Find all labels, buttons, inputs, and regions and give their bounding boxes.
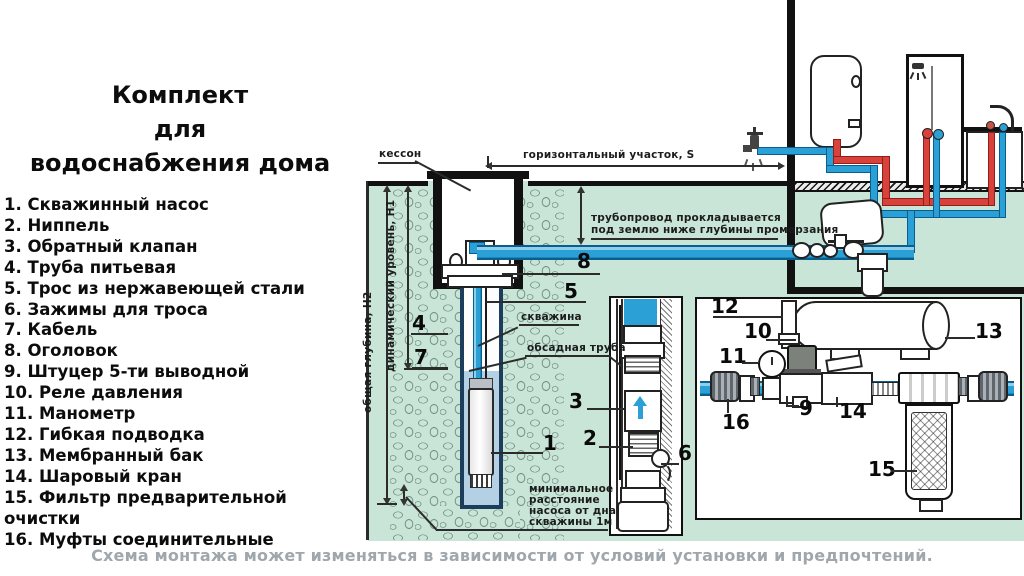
legend-item: 8. Оголовок — [4, 341, 366, 362]
sink-cabinet — [966, 131, 1023, 189]
dim-s-label: горизонтальный участок, S — [523, 150, 694, 162]
legend-item: 3. Обратный клапан — [4, 237, 366, 258]
dim-freeze-arrow-bottom — [577, 238, 585, 245]
gravel-bottom-patch — [440, 506, 520, 540]
prefilter-head — [898, 372, 960, 404]
submersible-pump — [468, 388, 494, 476]
legend-item: 12. Гибкая подводка — [4, 425, 366, 446]
label-min-distance: минимальное расстояние насоса от дна скв… — [529, 484, 616, 528]
shower-hot-valve — [922, 128, 933, 139]
coupling-right-body — [978, 371, 1008, 402]
pipe-cold-sink-riser — [1000, 133, 1005, 217]
dim-h1-arrow-top — [404, 185, 412, 192]
callout-16: 16 — [722, 412, 750, 432]
shower-spray-2 — [917, 73, 919, 80]
callout-12: 12 — [711, 296, 739, 316]
callout-10: 10 — [744, 321, 772, 341]
callout-9: 9 — [799, 398, 813, 418]
ground-line-left — [368, 181, 428, 186]
pipe-cold-to-heater — [758, 148, 833, 154]
label-pipe-note-underline — [591, 238, 778, 240]
tank-foot-right — [900, 348, 930, 360]
house-foundation-line — [787, 287, 1024, 294]
pipe-hot-shower-riser — [924, 136, 929, 205]
prefilter-drain — [919, 499, 943, 512]
callout-13-leader — [945, 337, 975, 339]
pipe-hot-sink-riser — [989, 133, 994, 205]
callout-3: 3 — [569, 391, 583, 411]
shower-head-icon — [912, 63, 924, 69]
dim-freeze-arrow-top — [577, 186, 585, 193]
water-heater — [810, 55, 862, 148]
pipe-hot-drop — [883, 157, 889, 205]
legend-item: 15. Фильтр предварительной очистки — [4, 488, 366, 530]
legend-item: 2. Ниппель — [4, 216, 366, 237]
label-pipe-note: трубопровод прокладывается под землю ниж… — [591, 213, 838, 236]
legend-item: 10. Реле давления — [4, 383, 366, 404]
callout-8: 8 — [577, 251, 591, 271]
callout-5-leader — [486, 301, 586, 303]
station-filter-bowl — [861, 268, 884, 297]
diagram-canvas: Комплект для водоснабжения дома 1. Скваж… — [0, 0, 1024, 576]
gauge-needle — [771, 357, 773, 365]
coupling-left-rings — [750, 377, 760, 396]
pipe-hot-run — [834, 157, 889, 163]
dim-h1-line — [407, 189, 409, 369]
inset-pump-body-3 — [617, 501, 669, 532]
label-kesson-underline — [378, 162, 418, 164]
callout-15-leader — [891, 470, 917, 472]
dim-s-tick — [487, 156, 489, 168]
outdoor-faucet-spout — [743, 145, 752, 152]
callout-3-leader — [587, 408, 624, 410]
flow-arrow-stem — [638, 404, 643, 419]
sink-cold-tap — [999, 123, 1008, 132]
legend-item: 5. Трос из нержавеющей стали — [4, 279, 366, 300]
callout-1-leader — [491, 452, 543, 454]
membrane-tank-end — [922, 301, 950, 350]
inset-cable — [619, 305, 621, 480]
shower-riser-pipe — [931, 66, 933, 130]
callout-10-leader — [766, 339, 796, 341]
callout-6-leader — [661, 463, 679, 465]
page-title: Комплект для водоснабжения дома — [0, 78, 360, 180]
label-casing: обсадная труба — [527, 343, 626, 355]
legend-item: 9. Штуцер 5-ти выводной — [4, 362, 366, 383]
label-borehole: скважина — [521, 312, 582, 324]
legend-item: 4. Труба питьевая — [4, 258, 366, 279]
callout-12-leader — [713, 316, 783, 318]
callout-9-leader-h — [786, 405, 799, 407]
callout-8-leader — [502, 273, 600, 275]
prefilter-cartridge — [911, 412, 947, 490]
callout-4: 4 — [412, 313, 426, 333]
water-heater-thermostat — [851, 75, 861, 88]
dim-h2-tick — [377, 503, 397, 505]
callout-7-leader — [412, 367, 448, 369]
inset-casing-wall-left — [616, 299, 618, 529]
pressure-relay — [787, 345, 817, 371]
inset-pump-head-threads — [624, 355, 661, 374]
label-casing-underline — [525, 355, 610, 357]
callout-14: 14 — [839, 401, 867, 421]
caption: Схема монтажа может изменяться в зависим… — [0, 546, 1024, 565]
pipe-cold-under-heater — [827, 166, 877, 172]
callout-6: 6 — [678, 443, 692, 463]
callout-15: 15 — [868, 459, 896, 479]
legend-list: 1. Скважинный насос2. Ниппель3. Обратный… — [4, 195, 366, 550]
ground-line-right — [528, 181, 788, 186]
callout-1: 1 — [543, 433, 557, 453]
pipe-cold-shower-riser — [934, 136, 939, 217]
callout-7: 7 — [414, 347, 428, 367]
legend-item: 6. Зажимы для троса — [4, 300, 366, 321]
inset-water-column — [624, 299, 657, 325]
membrane-tank-body — [792, 301, 937, 350]
legend-item: 1. Скважинный насос — [4, 195, 366, 216]
callout-5: 5 — [564, 281, 578, 301]
shower-cold-valve — [933, 129, 944, 140]
legend-item: 11. Манометр — [4, 404, 366, 425]
callout-13: 13 — [975, 321, 1003, 341]
callout-16-leader — [727, 399, 729, 413]
coupling-left-body — [710, 371, 740, 402]
sink-hot-tap — [986, 121, 995, 130]
legend-item: 13. Мембранный бак — [4, 446, 366, 467]
dim-h2-label: общая глубина, Н2 — [362, 238, 374, 413]
label-borehole-underline — [519, 324, 579, 326]
callout-2: 2 — [583, 428, 597, 448]
dim-s-arrow-right — [778, 162, 785, 170]
legend-item: 14. Шаровый кран — [4, 467, 366, 488]
label-kesson: кессон — [379, 149, 421, 161]
station-fitting-3 — [823, 244, 838, 258]
callout-2-leader — [599, 446, 633, 448]
legend-item: 7. Кабель — [4, 320, 366, 341]
pump-intake-grille — [470, 474, 492, 488]
dim-1m-arrow-top — [400, 484, 408, 491]
threaded-nipple — [871, 382, 899, 396]
dim-freeze-line — [580, 190, 582, 242]
callout-11-leader — [742, 362, 758, 364]
dim-s-line — [489, 165, 781, 167]
callout-4-leader — [411, 333, 448, 335]
water-heater-valve — [848, 119, 861, 128]
dim-h2-arrow-top — [383, 185, 391, 192]
dim-h1-label: динамический уровень, Н1 — [385, 192, 397, 372]
callout-14-leader — [836, 397, 838, 407]
wellhead-flange — [447, 275, 513, 288]
label-min-distance-underline — [436, 529, 608, 531]
